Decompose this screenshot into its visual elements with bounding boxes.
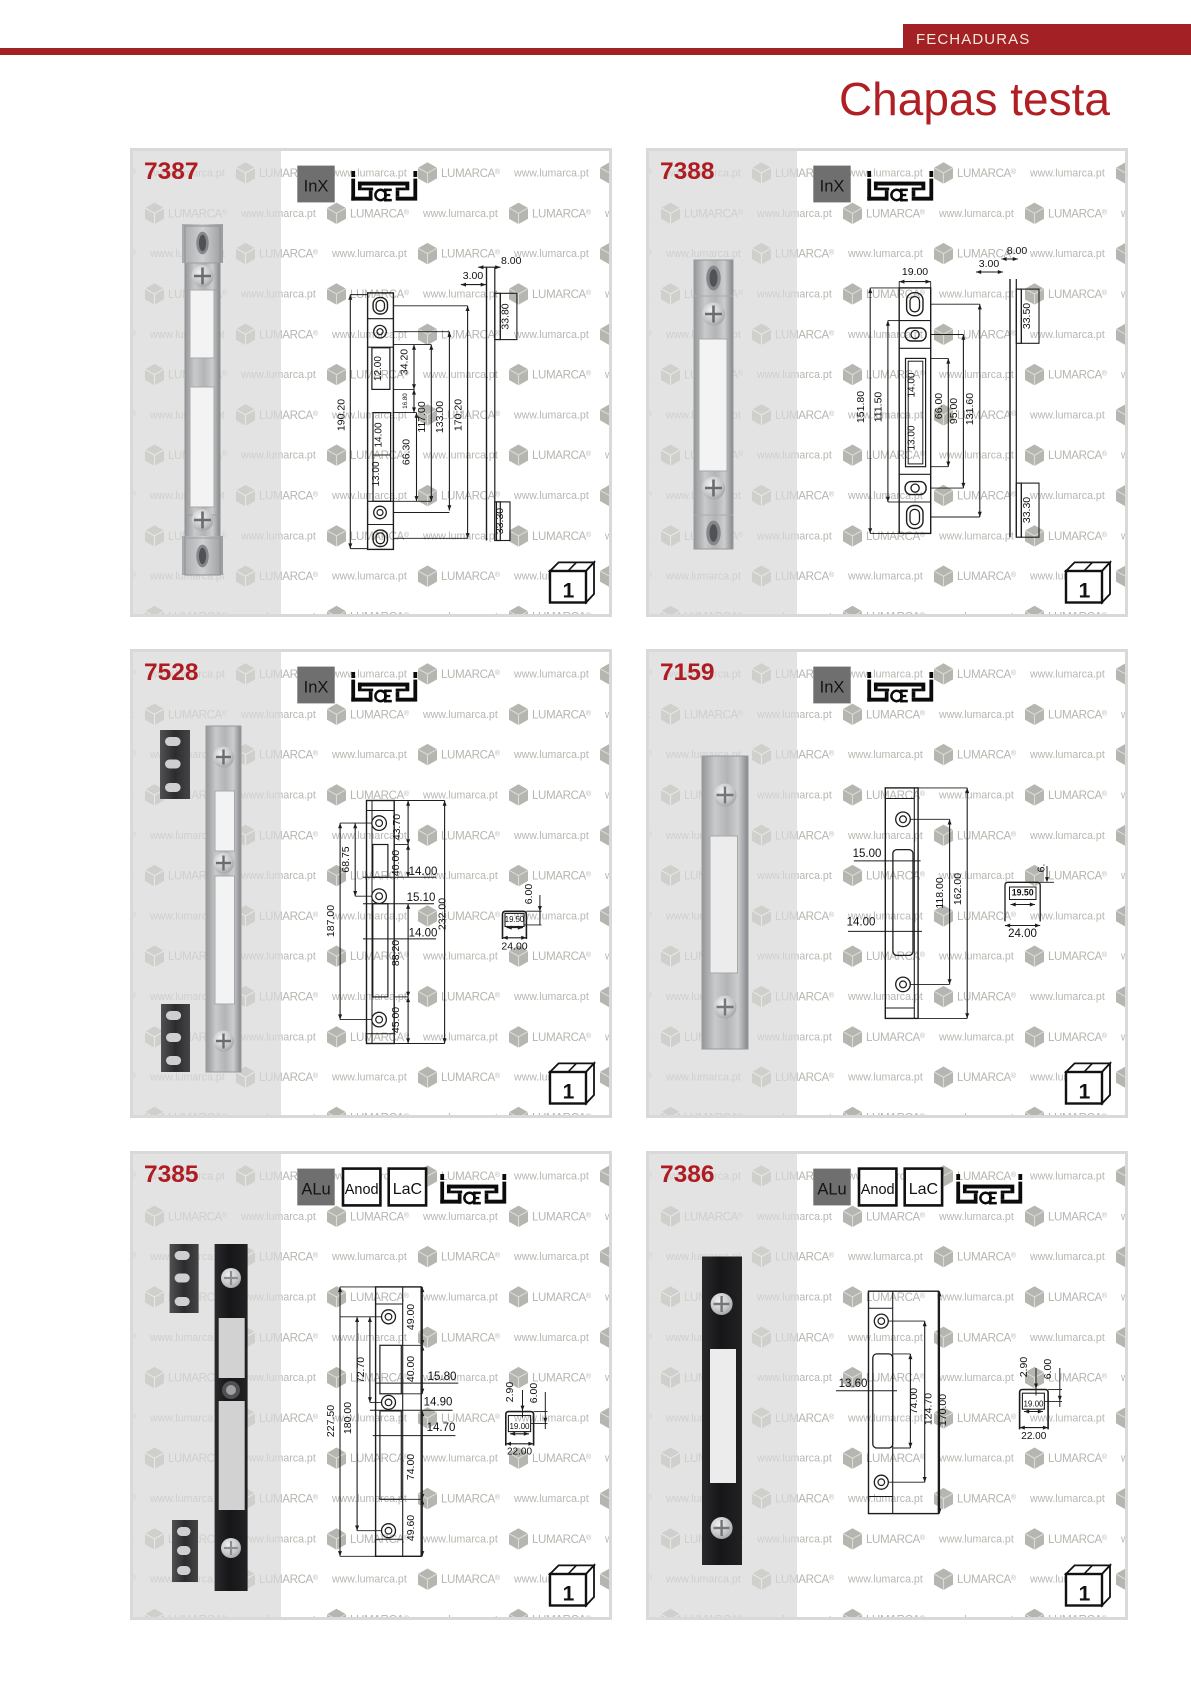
svg-text:1: 1 [1079,580,1091,603]
svg-text:15.80: 15.80 [428,1371,457,1383]
svg-text:19.50: 19.50 [505,915,525,924]
svg-text:190.20: 190.20 [336,399,348,431]
svg-text:74.00: 74.00 [405,1454,417,1480]
svg-text:6.00: 6.00 [1042,1359,1054,1380]
svg-text:InX: InX [304,178,329,196]
svg-text:6.: 6. [1036,864,1048,873]
svg-text:180.00: 180.00 [342,1402,354,1434]
svg-text:68.75: 68.75 [340,846,352,872]
svg-text:LaC: LaC [909,1181,938,1198]
svg-text:187.00: 187.00 [325,905,337,937]
svg-text:7386: 7386 [660,1161,715,1188]
svg-text:Anod: Anod [861,1182,895,1198]
svg-text:14.90: 14.90 [424,1397,453,1409]
svg-text:13.00: 13.00 [371,461,382,486]
svg-text:1: 1 [563,580,575,603]
svg-text:24.00: 24.00 [501,941,527,953]
svg-text:95.00: 95.00 [948,398,960,424]
svg-text:111.50: 111.50 [873,392,885,423]
svg-text:170.20: 170.20 [453,399,465,431]
svg-text:7528: 7528 [144,659,199,686]
svg-text:InX: InX [304,679,329,697]
svg-text:1: 1 [1079,1583,1091,1606]
svg-text:43.70: 43.70 [391,814,403,840]
svg-text:19.00: 19.00 [509,1422,530,1431]
svg-text:7159: 7159 [660,659,715,686]
svg-text:34.20: 34.20 [399,349,411,375]
svg-text:8.00: 8.00 [501,255,522,267]
svg-text:14.00: 14.00 [906,372,917,397]
svg-text:14.00: 14.00 [409,866,438,878]
svg-text:40.00: 40.00 [405,1356,417,1382]
svg-text:16.80: 16.80 [402,393,409,409]
svg-text:InX: InX [820,679,845,697]
svg-text:7387: 7387 [144,158,199,185]
svg-text:8.00: 8.00 [1007,245,1028,257]
svg-text:1: 1 [563,1583,575,1606]
svg-text:13.60: 13.60 [839,1378,868,1390]
svg-text:ALu: ALu [817,1181,846,1199]
svg-text:117.00: 117.00 [416,401,428,432]
svg-text:2.90: 2.90 [504,1382,516,1403]
svg-text:1: 1 [563,1081,575,1104]
svg-text:33.30: 33.30 [1021,497,1033,523]
svg-text:1: 1 [1079,1081,1091,1104]
svg-text:6.00: 6.00 [528,1383,540,1404]
svg-text:45.00: 45.00 [390,1007,402,1033]
svg-text:15.10: 15.10 [407,892,436,904]
svg-text:124.70: 124.70 [923,1393,935,1425]
svg-text:232.00: 232.00 [437,898,449,930]
svg-text:40.00: 40.00 [390,850,402,876]
svg-text:66.00: 66.00 [933,393,945,419]
svg-text:7388: 7388 [660,158,715,185]
svg-text:2.90: 2.90 [1018,1357,1030,1378]
svg-text:74.00: 74.00 [908,1388,920,1414]
svg-text:7385: 7385 [144,1161,199,1188]
svg-text:66.30: 66.30 [401,439,413,465]
svg-text:6.00: 6.00 [523,884,535,905]
svg-text:170.00: 170.00 [937,1394,949,1426]
svg-text:ALu: ALu [301,1181,330,1199]
svg-text:Anod: Anod [345,1182,379,1198]
svg-text:33.50: 33.50 [1021,303,1033,329]
svg-text:162.00: 162.00 [952,873,964,905]
svg-text:72.70: 72.70 [355,1357,367,1383]
svg-text:19.50: 19.50 [1012,888,1034,898]
svg-text:33.30: 33.30 [494,508,506,534]
svg-text:13.00: 13.00 [906,425,917,450]
svg-text:118.00: 118.00 [934,877,946,908]
svg-text:151.80: 151.80 [855,391,867,423]
svg-text:133.00: 133.00 [434,401,446,433]
svg-text:3.00: 3.00 [463,270,484,282]
svg-text:49.60: 49.60 [405,1515,417,1541]
svg-text:InX: InX [820,178,845,196]
svg-text:227.50: 227.50 [325,1405,337,1437]
svg-text:14.70: 14.70 [427,1422,456,1434]
svg-text:15.00: 15.00 [853,848,882,860]
svg-text:131.60: 131.60 [964,393,976,425]
svg-text:14.00: 14.00 [847,917,876,929]
svg-text:33.80: 33.80 [500,303,512,329]
svg-text:14.00: 14.00 [374,422,385,447]
svg-text:24.00: 24.00 [1008,928,1037,940]
svg-text:49.00: 49.00 [405,1304,417,1330]
svg-text:22.00: 22.00 [507,1447,532,1458]
svg-text:19.00: 19.00 [1023,1400,1044,1409]
svg-text:14.00: 14.00 [409,928,438,940]
svg-text:LaC: LaC [393,1181,422,1198]
svg-text:22.00: 22.00 [1021,1431,1046,1442]
svg-text:19.00: 19.00 [902,266,928,278]
svg-text:88.20: 88.20 [390,940,402,966]
svg-text:3.00: 3.00 [979,258,1000,270]
svg-text:12.00: 12.00 [373,356,384,381]
